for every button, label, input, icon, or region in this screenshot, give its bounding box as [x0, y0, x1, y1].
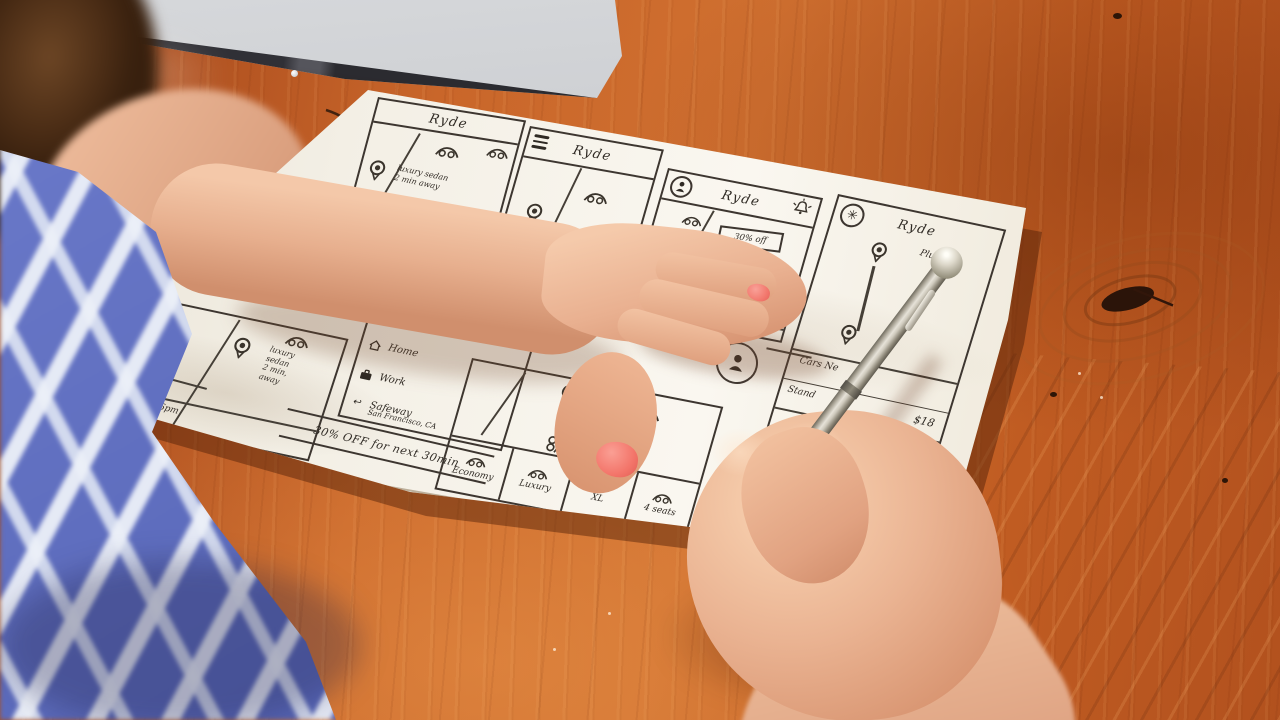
photo-scene: Ryde luxury sedan 2 min away Ryde — [0, 0, 1280, 720]
wood-fleck — [1100, 396, 1103, 399]
car-icon — [484, 144, 511, 161]
map-pin-icon — [865, 239, 891, 264]
bell-icon — [790, 197, 815, 218]
frame3-title: Ryde — [720, 188, 762, 210]
pin-label: luxury sedan 2 min, away — [257, 345, 317, 394]
car-icon — [679, 213, 704, 230]
wood-knot — [1020, 226, 1270, 436]
laptop-highlight-dot — [291, 70, 298, 77]
history-arrow-icon: ↩ — [349, 396, 366, 409]
briefcase-icon — [357, 366, 376, 383]
wood-fleck — [553, 648, 556, 651]
profile-person-icon — [667, 174, 695, 199]
car-icon — [433, 143, 463, 162]
tab-label: XL — [590, 493, 605, 505]
person-icon — [672, 179, 690, 195]
wood-speck — [1222, 478, 1228, 483]
wood-speck — [1050, 392, 1057, 397]
gear-glyph: ✳ — [845, 207, 860, 224]
frame2-title: Ryde — [571, 143, 613, 164]
settings-gear-icon: ✳ — [837, 201, 868, 229]
map-pin-icon — [228, 335, 256, 361]
hamburger-menu-icon — [531, 134, 550, 150]
pin-label: luxury sedan 2 min away — [393, 163, 461, 195]
list-row-label: Stand — [786, 383, 817, 401]
list-item-label: Work — [378, 372, 407, 388]
wood-speck — [1113, 13, 1122, 19]
car-icon — [581, 188, 611, 207]
wood-fleck — [1078, 372, 1081, 375]
map-pin-icon — [364, 157, 389, 181]
route-line — [856, 266, 875, 331]
sleeve-shadow — [0, 560, 360, 720]
map-pin-icon — [835, 322, 861, 347]
frame4-title: Ryde — [896, 217, 938, 239]
